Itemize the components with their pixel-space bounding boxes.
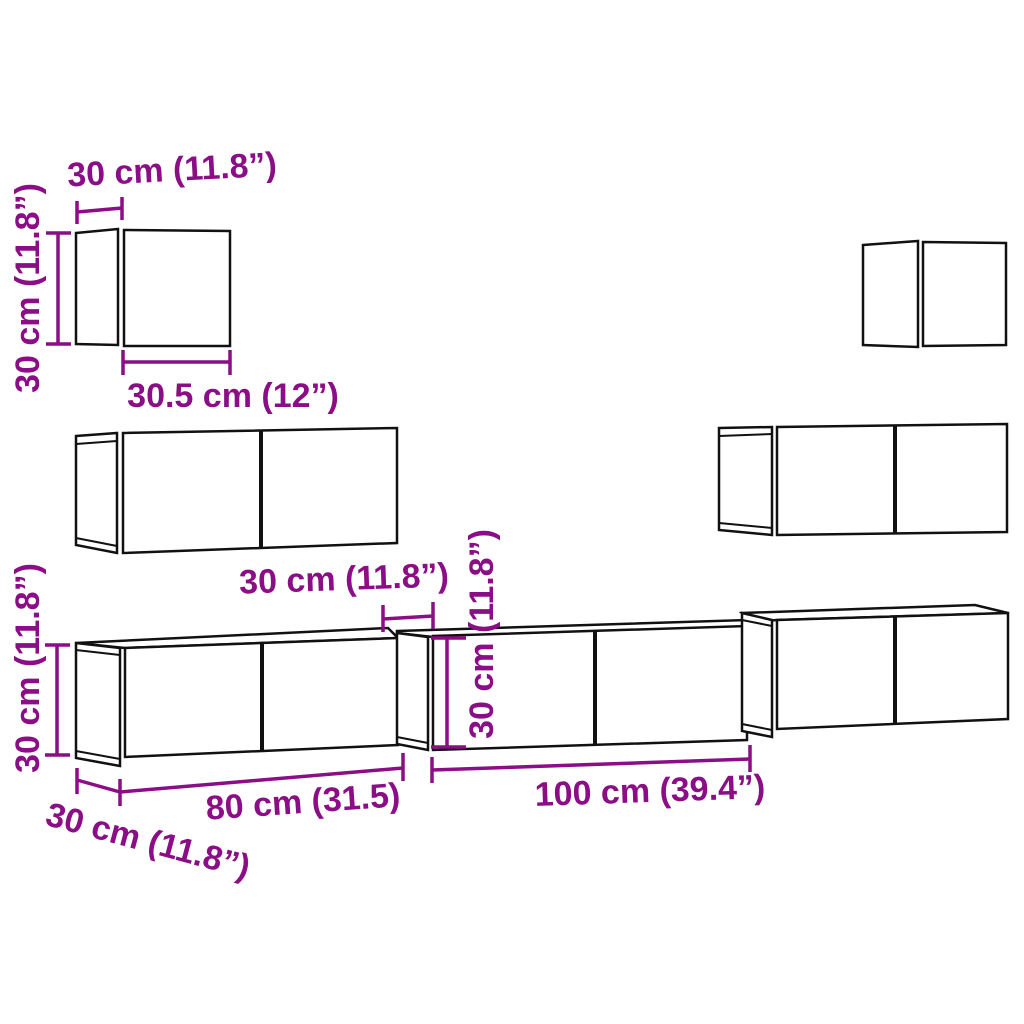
label-large-depth: 30 cm (11.8”) [239,556,450,601]
dim-line-depth [77,208,122,212]
dim-line-width [432,759,750,770]
cabinet-dimension-diagram: 30 cm (11.8”) 30 cm (11.8”) 30.5 cm (12”… [0,0,1024,1024]
cabinet-middle-left-wide [76,428,397,553]
cabinet-middle-right-wide [719,424,1007,535]
cabinet-front-panel [923,242,1006,346]
cabinet-side-panel [76,433,117,553]
cabinet-bottom-left-80cm [76,628,398,766]
label-small-height: 30 cm (11.8”) [9,183,47,393]
cabinet-side-panel [863,241,918,347]
cabinet-side-panel [742,613,772,737]
cabinet-front-panel [777,613,1008,729]
label-small-width: 30.5 cm (12”) [127,377,339,415]
cabinet-side-panel [397,633,428,750]
cabinet-top-right-small [863,241,1006,347]
label-medium-height: 30 cm (11.8”) [9,563,47,773]
label-large-height: 30 cm (11.8”) [463,529,501,739]
cabinet-side-panel [76,643,120,766]
dim-line-depth [383,616,433,619]
cabinet-bottom-right [742,605,1008,737]
cabinet-front-panel [124,230,230,346]
label-small-depth: 30 cm (11.8”) [66,146,277,195]
label-large-width: 100 cm (39.4”) [534,768,766,814]
cabinet-side-panel [76,229,118,345]
cabinet-front-panel [777,424,1007,535]
cabinet-side-panel [719,427,772,535]
dimension-diagram-page: 30 cm (11.8”) 30 cm (11.8”) 30.5 cm (12”… [0,0,1024,1024]
cabinet-top-left-small [76,229,230,346]
